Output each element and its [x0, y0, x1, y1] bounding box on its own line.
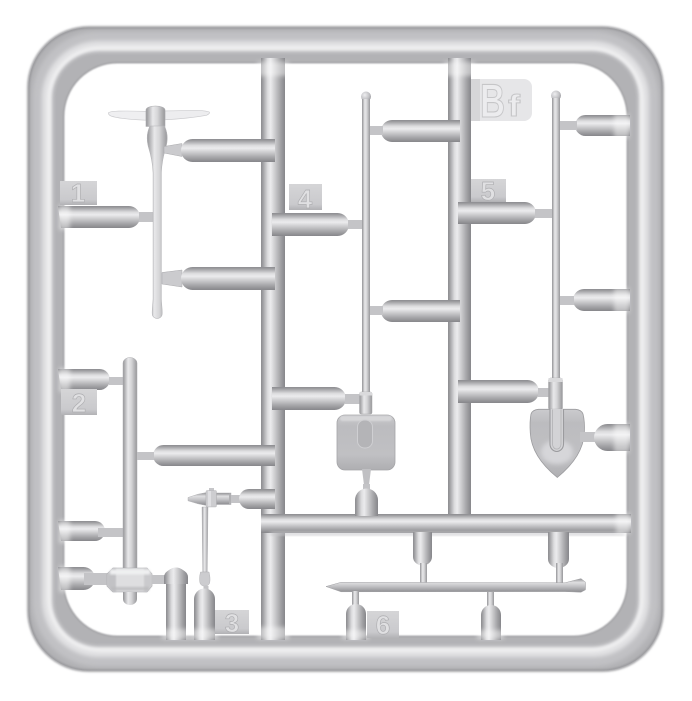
svg-text:f: f	[508, 88, 521, 123]
svg-text:4: 4	[298, 184, 313, 214]
svg-text:1: 1	[71, 178, 85, 208]
svg-text:2: 2	[72, 388, 86, 418]
svg-text:5: 5	[481, 176, 495, 206]
svg-text:3: 3	[225, 608, 239, 638]
svg-text:B: B	[480, 74, 505, 127]
svg-text:6: 6	[376, 610, 390, 640]
